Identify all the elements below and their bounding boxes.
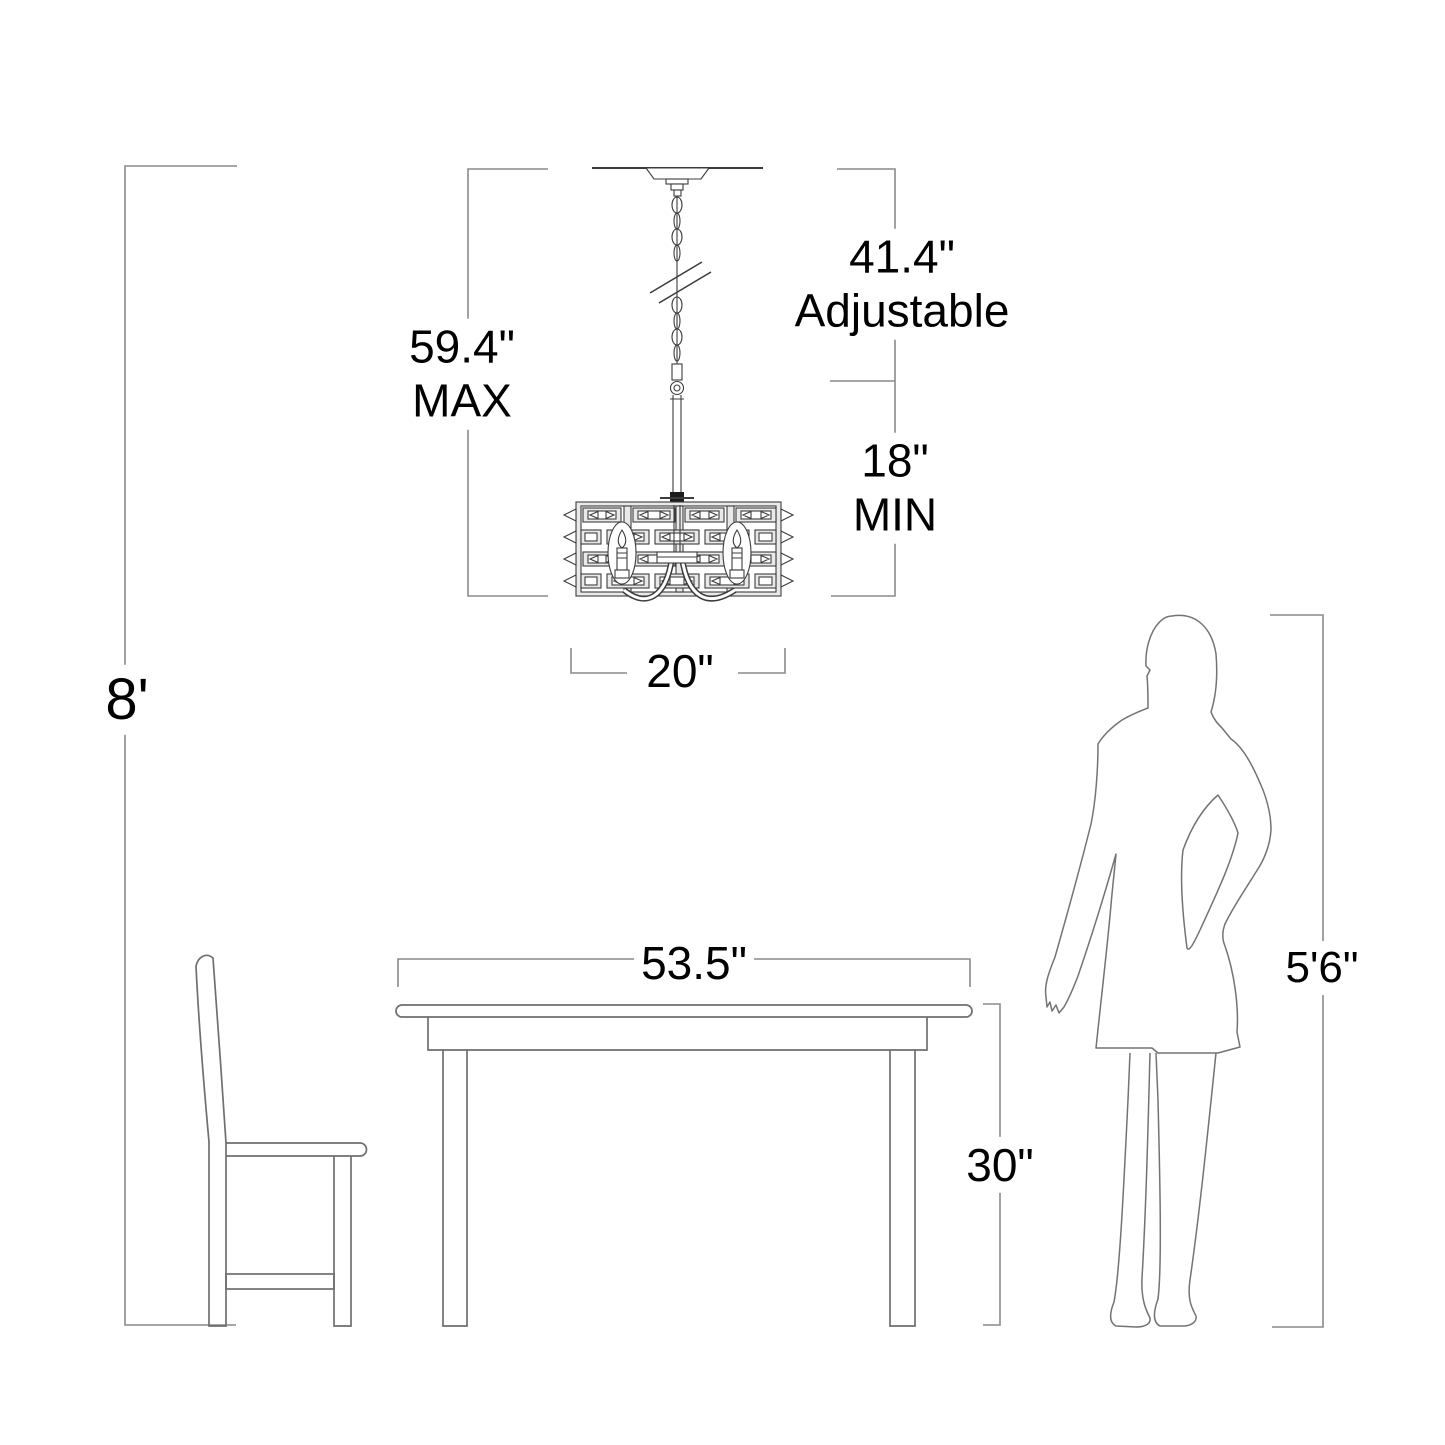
chair-stretcher [226, 1274, 334, 1289]
diagram-artwork [0, 0, 1445, 1445]
woman-silhouette [1046, 615, 1271, 1327]
max-height-caption: MAX [409, 374, 515, 428]
label-min-height: 18" MIN [846, 433, 944, 544]
candle-bulb [608, 522, 636, 584]
table-leg [890, 1050, 915, 1326]
dimension-lines [125, 166, 1323, 1327]
table-height-value: 30" [966, 1138, 1034, 1192]
hanging-chain [650, 196, 711, 366]
woman-right-leg [1155, 1053, 1217, 1326]
min-height-value: 18" [853, 434, 937, 488]
table-apron [428, 1017, 927, 1050]
woman-arm-gap [1182, 795, 1238, 949]
max-height-value: 59.4" [409, 320, 515, 374]
chair-seat [226, 1143, 367, 1156]
ceiling-canopy [646, 168, 709, 196]
crystal-drum [564, 502, 793, 599]
ceiling-height-dimension [125, 166, 237, 1325]
dimension-diagram: 59.4" MAX 41.4" Adjustable 18" MIN 20" 8… [0, 0, 1445, 1445]
chair-front-leg [334, 1156, 351, 1326]
adjustable-caption: Adjustable [795, 284, 1010, 338]
chandelier-drawing [564, 168, 793, 599]
min-height-caption: MIN [853, 488, 937, 542]
ceiling-height-value: 8' [105, 666, 148, 734]
person-height-value: 5'6" [1286, 942, 1359, 994]
table-width-value: 53.5" [641, 936, 747, 990]
label-ceiling-height: 8' [98, 665, 155, 735]
adjustable-value: 41.4" [795, 230, 1010, 284]
down-rod [670, 364, 684, 494]
candle-bulb [723, 522, 751, 584]
fixture-width-value: 20" [646, 644, 714, 698]
label-max-height: 59.4" MAX [402, 319, 522, 430]
label-fixture-width: 20" [639, 643, 721, 699]
label-table-width: 53.5" [634, 935, 754, 991]
label-adjustable-height: 41.4" Adjustable [788, 229, 1017, 340]
label-person-height: 5'6" [1279, 941, 1366, 995]
label-table-height: 30" [959, 1137, 1041, 1193]
chain-break-mark [650, 262, 711, 303]
table-leg [443, 1050, 467, 1326]
woman-left-leg [1111, 1053, 1151, 1327]
dining-table-drawing [396, 1005, 972, 1326]
table-top [396, 1005, 972, 1017]
chair-drawing [196, 955, 367, 1326]
chair-back-and-leg [196, 955, 226, 1326]
